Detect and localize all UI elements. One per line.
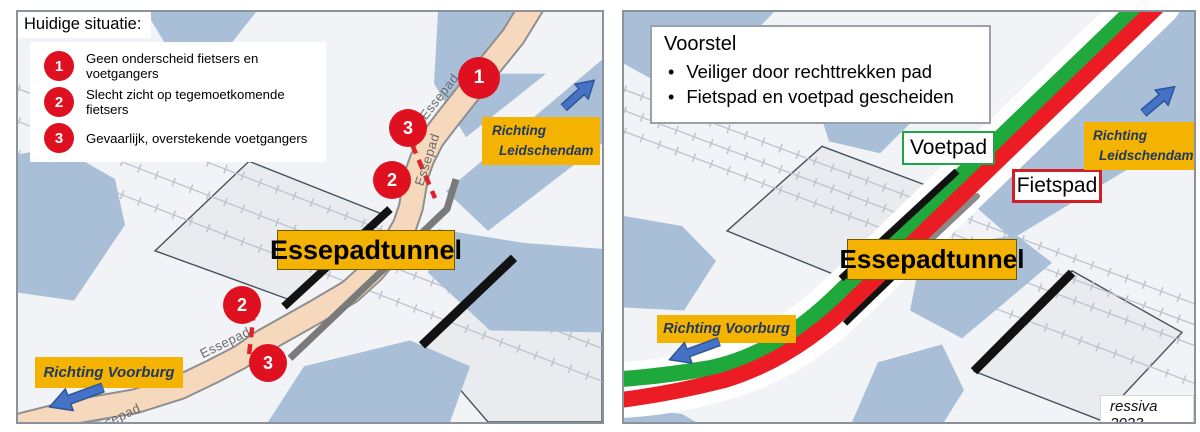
direction-line: Richting Voorburg (43, 364, 174, 381)
direction-line: Richting Voorburg (663, 321, 790, 337)
comparison-figure: Essepad Essepad Essepad Essepad Huidige … (0, 0, 1200, 432)
current-situation-panel: Essepad Essepad Essepad Essepad Huidige … (16, 10, 604, 424)
proposal-box: Voorstel Veiliger door rechttrekken pad … (650, 25, 991, 124)
legend-item: 2 Slecht zicht op tegemoetkomende fietse… (34, 87, 322, 117)
legend-item: 3 Gevaarlijk, overstekende voetgangers (34, 123, 322, 153)
legend-item-text: Geen onderscheid fietsers en voetgangers (86, 51, 322, 81)
direction-line: Leidschendam (1093, 146, 1194, 166)
legend-item: 1 Geen onderscheid fietsers en voetgange… (34, 51, 322, 81)
legend-marker-3: 3 (44, 123, 74, 153)
panel-title: Huidige situatie: (18, 12, 151, 38)
proposal-bullet: Veiliger door rechttrekken pad (664, 60, 979, 85)
problem-marker: 2 (373, 161, 411, 199)
direction-label-voorburg: Richting Voorburg (35, 357, 183, 388)
direction-label-leidschendam: Richting Leidschendam (1084, 122, 1194, 170)
tunnel-label: Essepadtunnel (277, 230, 455, 270)
direction-line: Richting (1093, 126, 1194, 146)
credit-text: ressiva 2023 (1100, 395, 1194, 424)
direction-line: Richting (492, 121, 600, 141)
tunnel-label: Essepadtunnel (847, 239, 1017, 280)
problem-marker: 2 (223, 286, 261, 324)
panel-title: Voorstel (664, 33, 979, 56)
legend-item-text: Gevaarlijk, overstekende voetgangers (86, 131, 307, 146)
legend-item-text: Slecht zicht op tegemoetkomende fietsers (86, 87, 322, 117)
problem-marker: 1 (458, 57, 500, 99)
direction-line: Leidschendam (492, 141, 600, 161)
problem-marker: 3 (389, 109, 427, 147)
proposal-bullet: Fietspad en voetpad gescheiden (664, 85, 979, 110)
voetpad-label: Voetpad (902, 131, 995, 165)
legend-marker-2: 2 (44, 87, 74, 117)
proposal-panel: Voorstel Veiliger door rechttrekken pad … (622, 10, 1196, 424)
direction-label-leidschendam: Richting Leidschendam (482, 117, 600, 165)
problem-marker: 3 (249, 344, 287, 382)
fietspad-label: Fietspad (1012, 169, 1102, 203)
legend-marker-1: 1 (44, 51, 74, 81)
legend: 1 Geen onderscheid fietsers en voetgange… (30, 42, 326, 162)
